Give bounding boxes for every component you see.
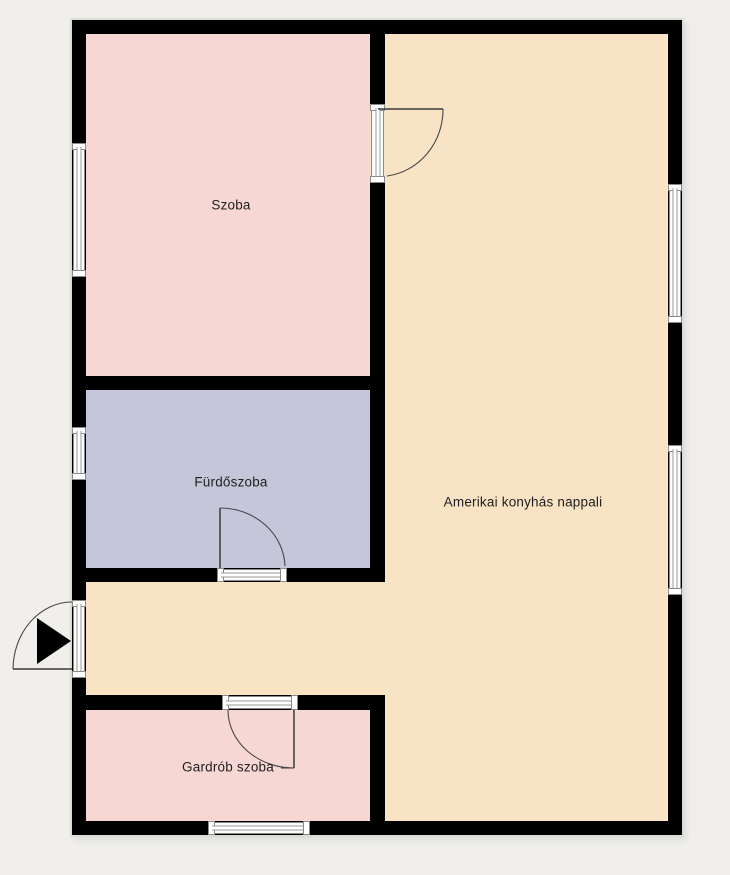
door-swing-szoba: [378, 109, 443, 176]
door-swing-layer: [0, 0, 730, 875]
room-label-furdoszoba: Fürdőszoba: [194, 475, 267, 490]
door-swing-furdoszoba: [220, 508, 285, 568]
floorplan-canvas: Szoba Fürdőszoba Amerikai konyhás nappal…: [0, 0, 730, 875]
room-label-szoba: Szoba: [211, 198, 250, 213]
door-swing-entrance: [13, 602, 72, 669]
room-label-nappali: Amerikai konyhás nappali: [444, 495, 603, 510]
entrance-arrow-icon: [37, 618, 71, 664]
room-label-gardrob: Gardrób szoba: [182, 760, 274, 775]
